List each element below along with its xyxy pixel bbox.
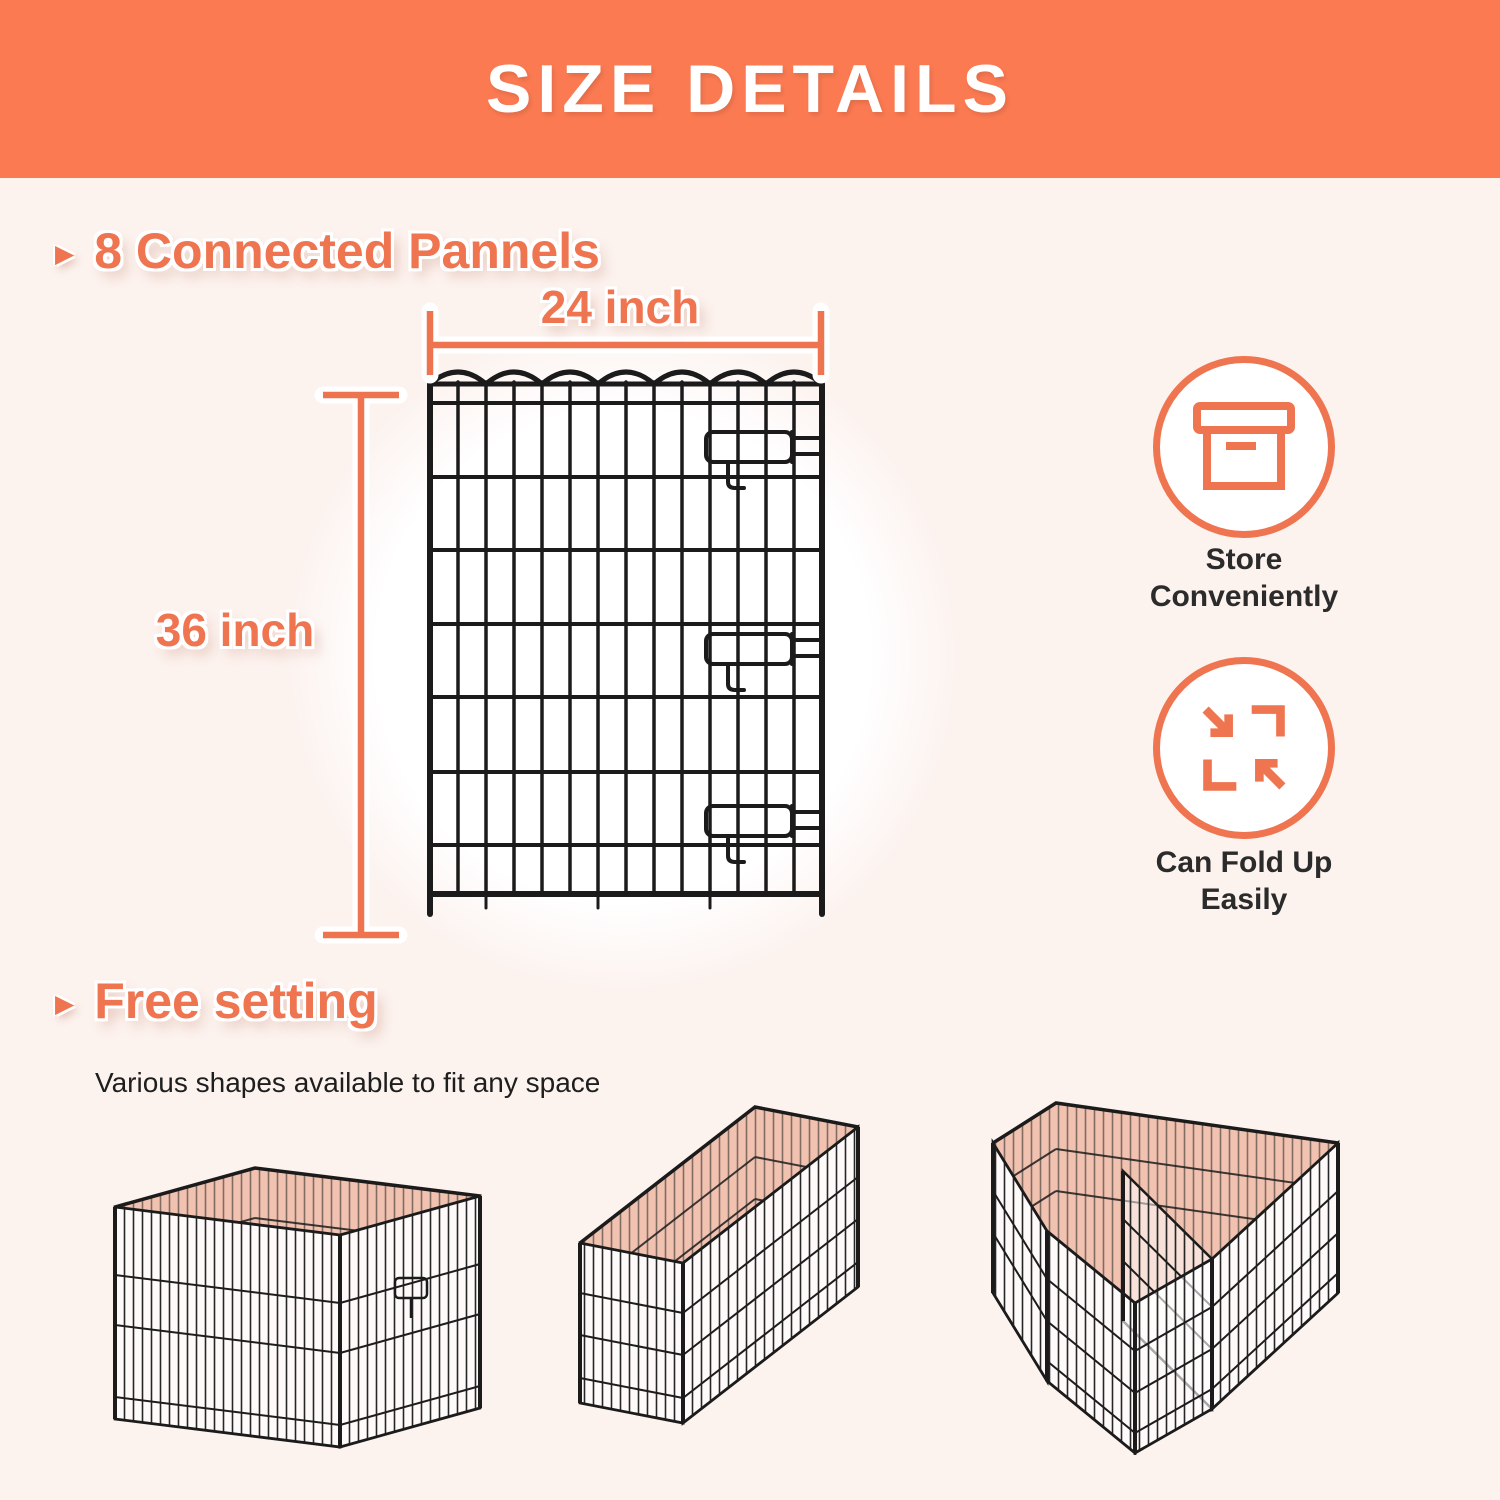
free-setting-section-heading: ▶ Free setting — [55, 974, 378, 1029]
rectangle-pen-image — [565, 1095, 895, 1440]
fold-arrows-icon — [1196, 700, 1292, 796]
square-pen-image — [105, 1160, 490, 1475]
feature-label-fold: Can Fold Up Easily — [1084, 844, 1404, 918]
l-shape-pen-image — [985, 1095, 1365, 1455]
free-setting-heading-text: Free setting — [94, 974, 377, 1029]
size-details-infographic: SIZE DETAILS ▶ 8 Connected Pannels — [0, 0, 1500, 1500]
feature-fold-line1: Can Fold Up — [1084, 844, 1404, 881]
page-title: SIZE DETAILS — [486, 50, 1014, 128]
feature-fold-line2: Easily — [1084, 881, 1404, 918]
bullet-triangle-icon: ▶ — [55, 241, 74, 266]
feature-store-line1: Store — [1084, 541, 1404, 578]
feature-label-store: Store Conveniently — [1084, 541, 1404, 615]
storage-box-icon — [1192, 401, 1296, 493]
width-dimension-label: 24 inch — [455, 283, 785, 331]
feature-store-line2: Conveniently — [1084, 578, 1404, 615]
bullet-triangle-icon: ▶ — [55, 991, 74, 1016]
height-dimension-label: 36 inch — [130, 606, 340, 654]
feature-circle-store — [1153, 356, 1335, 538]
dimension-lines — [280, 260, 880, 980]
feature-circle-fold — [1153, 657, 1335, 839]
header-banner: SIZE DETAILS — [0, 0, 1500, 178]
